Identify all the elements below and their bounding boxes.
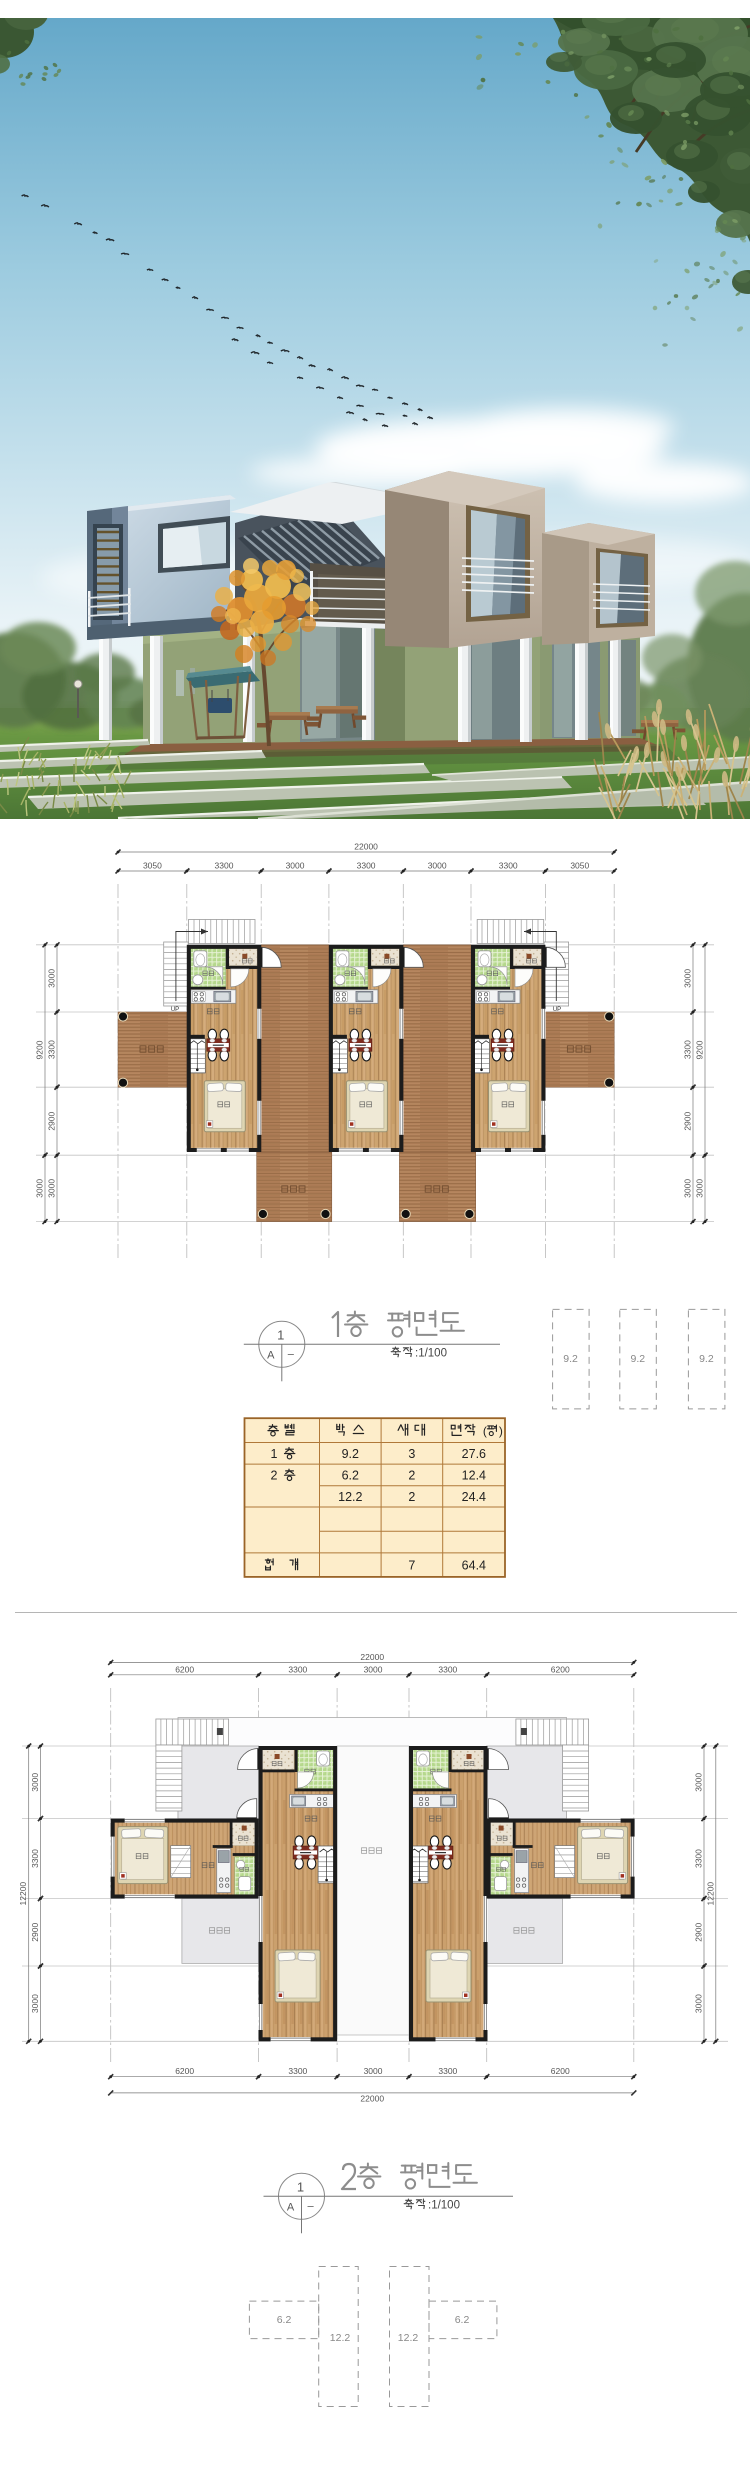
svg-text:UP: UP — [553, 1007, 561, 1013]
svg-text:22000: 22000 — [360, 1652, 384, 1662]
svg-text:1: 1 — [277, 1327, 284, 1342]
svg-text:2900: 2900 — [694, 1923, 704, 1942]
svg-text:24.4: 24.4 — [462, 1490, 486, 1504]
svg-text:3000: 3000 — [428, 861, 447, 871]
svg-text:UP: UP — [171, 1007, 179, 1013]
svg-text:9200: 9200 — [695, 1040, 705, 1059]
svg-text:3300: 3300 — [30, 1849, 40, 1868]
svg-text::1/100: :1/100 — [428, 2200, 460, 2212]
svg-text:3300: 3300 — [215, 861, 234, 871]
svg-text:3000: 3000 — [364, 1664, 383, 1674]
svg-text:12.2: 12.2 — [398, 2332, 419, 2344]
svg-text:6.2: 6.2 — [342, 1468, 359, 1482]
svg-text:9.2: 9.2 — [563, 1353, 578, 1365]
svg-text:3300: 3300 — [357, 861, 376, 871]
svg-text:3000: 3000 — [683, 969, 693, 988]
svg-text:2900: 2900 — [683, 1111, 693, 1130]
svg-text:6200: 6200 — [175, 2066, 194, 2076]
svg-text:6200: 6200 — [551, 1664, 570, 1674]
svg-text:3000: 3000 — [30, 1994, 40, 2013]
svg-text:3000: 3000 — [694, 1773, 704, 1792]
svg-text:12200: 12200 — [18, 1882, 28, 1906]
svg-text:1: 1 — [297, 2179, 304, 2194]
svg-text:9.2: 9.2 — [630, 1353, 645, 1365]
svg-text:3000: 3000 — [694, 1994, 704, 2013]
svg-text:2: 2 — [408, 1490, 415, 1504]
svg-text:3300: 3300 — [288, 2066, 307, 2076]
svg-text:2900: 2900 — [30, 1923, 40, 1942]
svg-text:–: – — [288, 1348, 295, 1360]
svg-text:3000: 3000 — [30, 1773, 40, 1792]
svg-text:12.2: 12.2 — [330, 2332, 351, 2344]
svg-text:3000: 3000 — [47, 1179, 57, 1198]
svg-text:3300: 3300 — [683, 1040, 693, 1059]
svg-text:3300: 3300 — [47, 1040, 57, 1059]
svg-text:2: 2 — [271, 1468, 278, 1482]
svg-text:6.2: 6.2 — [455, 2314, 470, 2326]
svg-text:12.2: 12.2 — [338, 1490, 362, 1504]
svg-text:A: A — [287, 2201, 295, 2213]
svg-text::1/100: :1/100 — [415, 1348, 447, 1360]
svg-text:3: 3 — [408, 1447, 415, 1461]
svg-text:2900: 2900 — [47, 1111, 57, 1130]
svg-text:3000: 3000 — [364, 2066, 383, 2076]
svg-text:22000: 22000 — [354, 842, 378, 852]
svg-text:): ) — [499, 1424, 503, 1438]
svg-text:A: A — [267, 1349, 275, 1361]
svg-text:3000: 3000 — [35, 1179, 45, 1198]
svg-text:3300: 3300 — [499, 861, 518, 871]
svg-text:1: 1 — [271, 1447, 278, 1461]
svg-text:6200: 6200 — [175, 1664, 194, 1674]
svg-text:7: 7 — [408, 1558, 415, 1572]
svg-text:–: – — [307, 2200, 314, 2212]
svg-text:9.2: 9.2 — [342, 1447, 359, 1461]
svg-text:3300: 3300 — [438, 1664, 457, 1674]
svg-text:3000: 3000 — [683, 1179, 693, 1198]
svg-text:3300: 3300 — [288, 1664, 307, 1674]
svg-text:3300: 3300 — [438, 2066, 457, 2076]
svg-text:64.4: 64.4 — [462, 1558, 486, 1572]
svg-text:12200: 12200 — [705, 1882, 715, 1906]
svg-text:27.6: 27.6 — [462, 1447, 486, 1461]
svg-text:3050: 3050 — [570, 861, 589, 871]
svg-text:3300: 3300 — [694, 1849, 704, 1868]
svg-text:6.2: 6.2 — [277, 2314, 292, 2326]
svg-text:3050: 3050 — [143, 861, 162, 871]
svg-text:2: 2 — [408, 1468, 415, 1482]
svg-text:9.2: 9.2 — [699, 1353, 714, 1365]
svg-text:3000: 3000 — [286, 861, 305, 871]
svg-text:12.4: 12.4 — [462, 1468, 486, 1482]
svg-text:22000: 22000 — [360, 2094, 384, 2104]
svg-text:(: ( — [483, 1424, 487, 1438]
svg-text:3000: 3000 — [47, 969, 57, 988]
svg-text:6200: 6200 — [551, 2066, 570, 2076]
svg-text:9200: 9200 — [35, 1040, 45, 1059]
svg-text:3000: 3000 — [695, 1179, 705, 1198]
